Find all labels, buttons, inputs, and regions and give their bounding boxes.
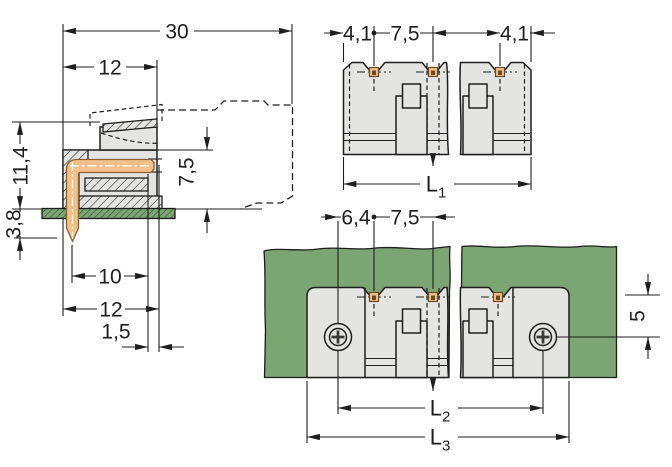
dim-label-1-5: 1,5 [101, 321, 130, 344]
dim-label-5: 5 [627, 310, 650, 322]
pcb-view: 6,4 7,5 5 L2 L3 [264, 207, 660, 455]
base-section [79, 196, 162, 209]
latch-tip [469, 84, 487, 108]
side-view: 30 12 11,4 3,8 7,5 10 12 1,5 [3, 20, 293, 352]
latch-tip [469, 309, 487, 333]
dim-label-7-5-side: 7,5 [176, 157, 199, 186]
dim-label-30: 30 [165, 21, 188, 44]
pcb-cross-section [42, 209, 175, 219]
technical-drawing-page: 30 12 11,4 3,8 7,5 10 12 1,5 [0, 0, 672, 467]
dim-label-6-4: 6,4 [341, 207, 371, 230]
partition-section [85, 178, 148, 191]
dim-label-11-4: 11,4 [10, 146, 33, 186]
dim-label-12-bottom: 12 [99, 299, 122, 322]
latch-tip [403, 309, 421, 333]
dim-label-10: 10 [98, 266, 121, 289]
dim-label-4-1-left: 4,1 [343, 23, 372, 46]
dim-label-3-8: 3,8 [3, 209, 26, 238]
dim-label-4-1-right: 4,1 [500, 23, 529, 46]
dim-label-7-5-top: 7,5 [390, 23, 419, 46]
top-view: 4,1 7,5 4,1 L1 [324, 23, 555, 202]
dim-label-7-5-pcb: 7,5 [390, 207, 419, 230]
connector-drawing-svg: 30 12 11,4 3,8 7,5 10 12 1,5 [0, 0, 672, 467]
dim-label-12-top: 12 [98, 57, 121, 80]
mating-plug-outline [157, 101, 293, 209]
latch-tip [403, 84, 421, 108]
